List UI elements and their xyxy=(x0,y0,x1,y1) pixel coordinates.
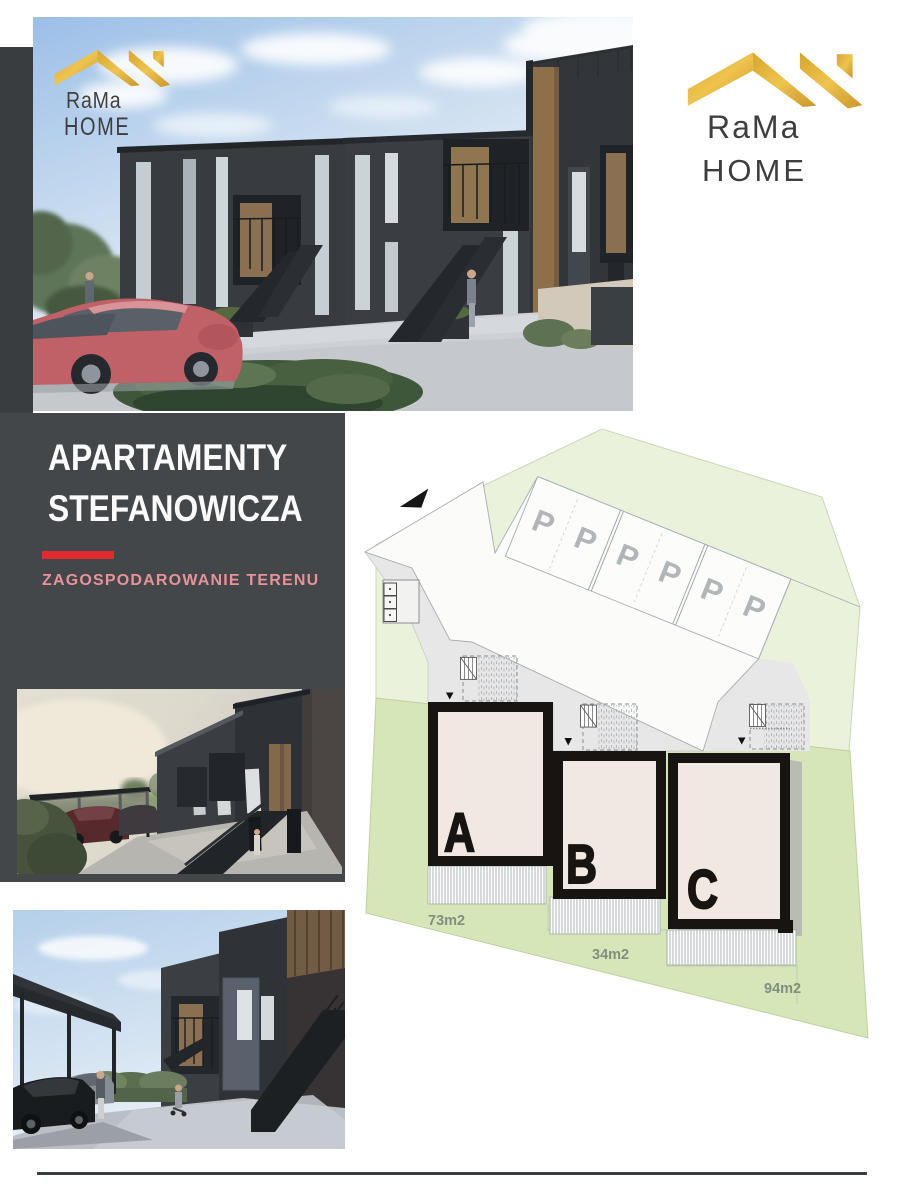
svg-text:RaMa: RaMa xyxy=(66,88,122,114)
svg-text:73m2: 73m2 xyxy=(428,913,465,929)
svg-text:HOME: HOME xyxy=(64,113,130,141)
svg-text:RaMa: RaMa xyxy=(707,109,800,145)
svg-text:94m2: 94m2 xyxy=(764,981,801,997)
svg-text:HOME: HOME xyxy=(702,153,807,188)
svg-text:A: A xyxy=(444,802,475,863)
svg-text:B: B xyxy=(566,834,597,895)
svg-text:34m2: 34m2 xyxy=(592,947,629,963)
svg-text:C: C xyxy=(687,859,718,920)
